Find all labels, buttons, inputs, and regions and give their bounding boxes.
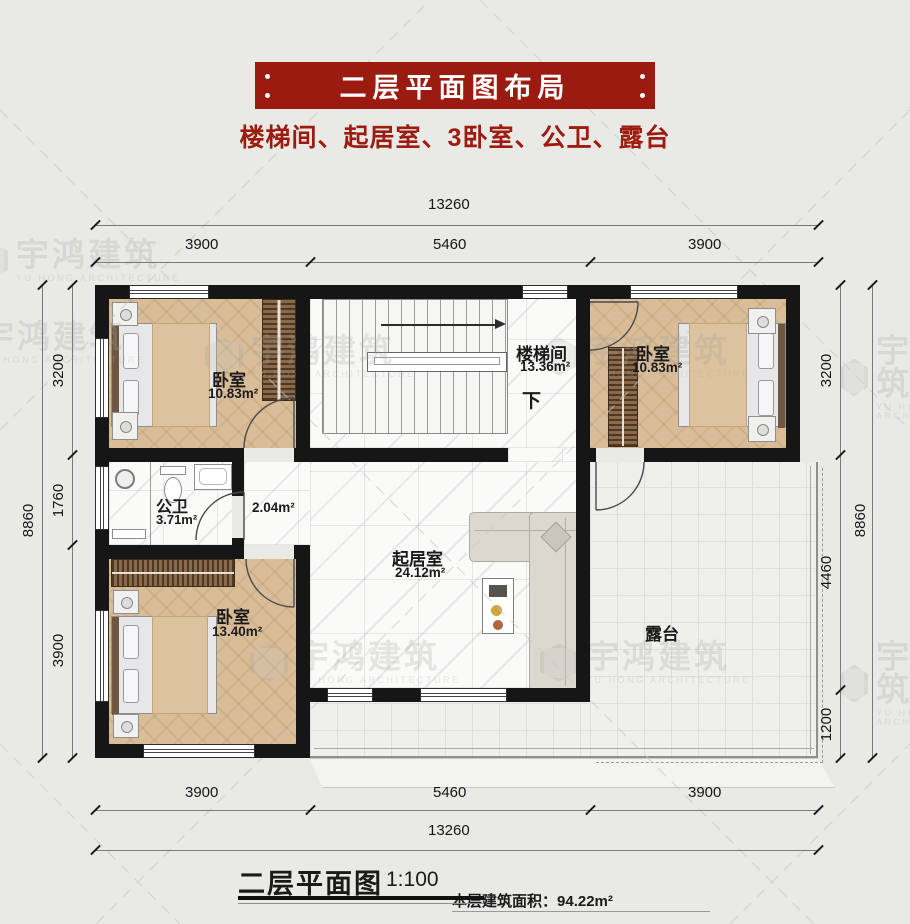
wall-east: [786, 285, 800, 462]
area-bedroom-bottom-left: 13.40m²: [212, 624, 262, 639]
shower-head-icon: [115, 469, 135, 489]
floor-area-text: 本层建筑面积：94.22m²: [452, 890, 613, 911]
bed-headboard: [778, 324, 785, 428]
table-tray: [489, 585, 507, 597]
bed-blanket: [152, 616, 208, 714]
shower-bench: [112, 529, 146, 539]
coffee-table: [482, 578, 514, 634]
wardrobe-bedroom-bottom-left: [111, 559, 235, 587]
bed-pillow: [758, 333, 774, 369]
bed-headboard: [112, 617, 119, 715]
window-living-south-1: [327, 688, 373, 702]
terrace-dashed-boundary: [596, 468, 823, 763]
stair-direction-arrow: [495, 319, 506, 329]
dim-line: [95, 225, 818, 226]
door-bedroom-bottom-left: [246, 559, 295, 608]
sink-basin: [199, 468, 227, 485]
wall-bathroom-east-a: [232, 462, 244, 496]
bed-pillow: [758, 380, 774, 416]
area-stairwell: 13.36m²: [520, 359, 570, 374]
area-bedroom-top-left: 10.83m²: [208, 386, 258, 401]
watermark: 宇鸿建筑YU HONG ARCHITECTURE: [0, 238, 181, 283]
floor-area-value: 94.22m²: [557, 893, 613, 910]
dim-bottom-seg-3: 3900: [688, 784, 721, 801]
wall-mid-left-lower: [296, 545, 310, 758]
window-living-south-2: [420, 688, 507, 702]
floor-terrace-strip: [310, 702, 590, 758]
nightstand: [112, 302, 138, 326]
plan-scale: 1:100: [386, 868, 439, 892]
dim-left-seg-1: 3200: [50, 354, 67, 387]
area-bathroom: 3.71m²: [156, 512, 197, 527]
window-bedroomTL-north: [129, 285, 209, 299]
dim-top-total: 13260: [428, 196, 470, 213]
floor-plan-page: { "header": { "title": "二层平面图布局", "subti…: [0, 0, 910, 924]
dim-bottom-seg-2: 5460: [433, 784, 466, 801]
dim-left-seg-3: 3900: [50, 634, 67, 667]
table-bowl: [493, 620, 503, 630]
dim-line: [95, 810, 818, 811]
wall-stair-living: [310, 448, 508, 462]
shower-divider: [150, 462, 151, 545]
dim-line: [95, 262, 818, 263]
page-subtitle: 楼梯间、起居室、3卧室、公卫、露台: [0, 118, 910, 154]
area-living-room: 24.12m²: [395, 565, 445, 580]
dim-right-total: 8860: [852, 504, 869, 537]
bed-pillow: [123, 333, 139, 369]
nightstand: [112, 412, 138, 440]
wall-bedroomTL-south-a: [95, 448, 244, 462]
toilet-tank: [160, 466, 186, 475]
wall-mid-right: [576, 285, 590, 702]
table-plant: [491, 605, 502, 616]
bed-pillow: [123, 625, 139, 659]
dim-bottom-seg-1: 3900: [185, 784, 218, 801]
dim-right-seg-1: 3200: [818, 354, 835, 387]
door-bedroom-top-left: [244, 398, 295, 449]
title-banner: 二层平面图布局: [255, 62, 655, 109]
dim-top-seg-1: 3900: [185, 236, 218, 253]
dim-right-seg-2: 4460: [818, 556, 835, 589]
dim-top-seg-2: 5460: [433, 236, 466, 253]
caption-underline-thin: [238, 903, 484, 904]
dim-top-seg-3: 3900: [688, 236, 721, 253]
bed-bottom-left: [111, 616, 217, 714]
nightstand: [113, 590, 139, 614]
bed-pillow: [123, 669, 139, 703]
watermark: 宇鸿建筑YU HONG ARCHITECTURE: [840, 640, 910, 727]
nightstand: [748, 308, 776, 334]
dim-left-seg-2: 1760: [50, 484, 67, 517]
banner-dot: [265, 93, 270, 98]
stair-handrail: [367, 352, 507, 372]
banner-dot: [640, 93, 645, 98]
window-bedroomTR-north: [630, 285, 738, 299]
bed-blanket: [689, 323, 747, 427]
banner-dot: [640, 74, 645, 79]
wall-bath-bedroomBL-b: [294, 545, 310, 559]
window-bathroom-west: [95, 466, 109, 530]
bed-top-right: [678, 323, 786, 427]
dim-line: [72, 285, 73, 758]
window-bedroomBL-west: [95, 610, 109, 702]
watermark-logo-icon: [840, 665, 868, 703]
caption-underline-thick: [238, 896, 484, 900]
nightstand: [113, 714, 139, 738]
banner-dot: [265, 74, 270, 79]
window-bedroomTL-west: [95, 338, 109, 418]
wall-bath-bedroomBL-a: [95, 545, 244, 559]
bed-pillow: [123, 380, 139, 416]
bed-blanket: [152, 323, 210, 427]
page-title: 二层平面图布局: [340, 66, 571, 105]
wall-mid-left-upper: [296, 285, 310, 462]
staircase: [322, 299, 508, 434]
window-stairwell-north: [522, 285, 568, 299]
label-stairs-down: 下: [522, 386, 541, 413]
dim-bottom-total: 13260: [428, 822, 470, 839]
stair-direction-line: [381, 324, 497, 326]
label-terrace: 露台: [645, 620, 679, 645]
watermark-logo-icon: [0, 242, 8, 280]
dim-left-total: 8860: [20, 504, 37, 537]
wall-bedroomTL-south-b: [294, 448, 310, 462]
door-bathroom: [196, 492, 245, 541]
area-bedroom-top-right: 10.83m²: [632, 360, 682, 375]
watermark: 宇鸿建筑YU HONG ARCHITECTURE: [840, 334, 910, 421]
door-terrace: [596, 462, 645, 511]
nightstand: [748, 416, 776, 442]
dim-line: [95, 850, 818, 851]
floor-passage: [508, 448, 576, 462]
wall-bedroomTR-south-a: [590, 448, 596, 462]
floor-area-underline: [452, 911, 710, 912]
window-bedroomBL-south: [143, 744, 255, 758]
dim-line: [872, 285, 873, 758]
watermark-logo-icon: [840, 359, 868, 397]
dim-right-seg-3: 1200: [818, 708, 835, 741]
dim-line: [42, 285, 43, 758]
wall-bedroomTR-south-b: [644, 448, 800, 462]
wardrobe-bedroom-top-left: [262, 299, 296, 401]
area-hallway: 2.04m²: [252, 500, 295, 515]
door-bedroom-top-right: [590, 302, 639, 351]
